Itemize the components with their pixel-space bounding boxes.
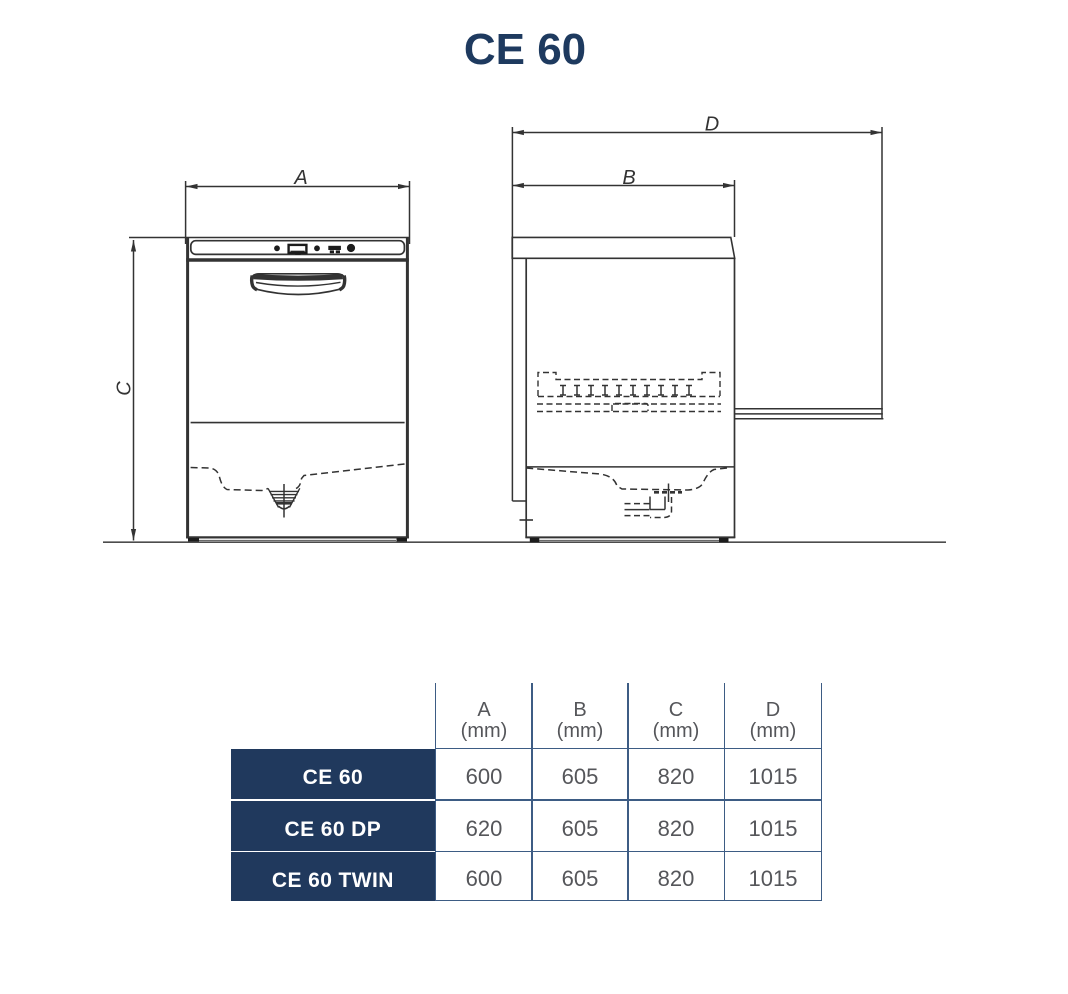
svg-text:C: C (114, 381, 136, 396)
svg-text:A: A (293, 167, 307, 189)
svg-text:D: D (705, 114, 719, 136)
svg-text:B: B (622, 167, 635, 189)
